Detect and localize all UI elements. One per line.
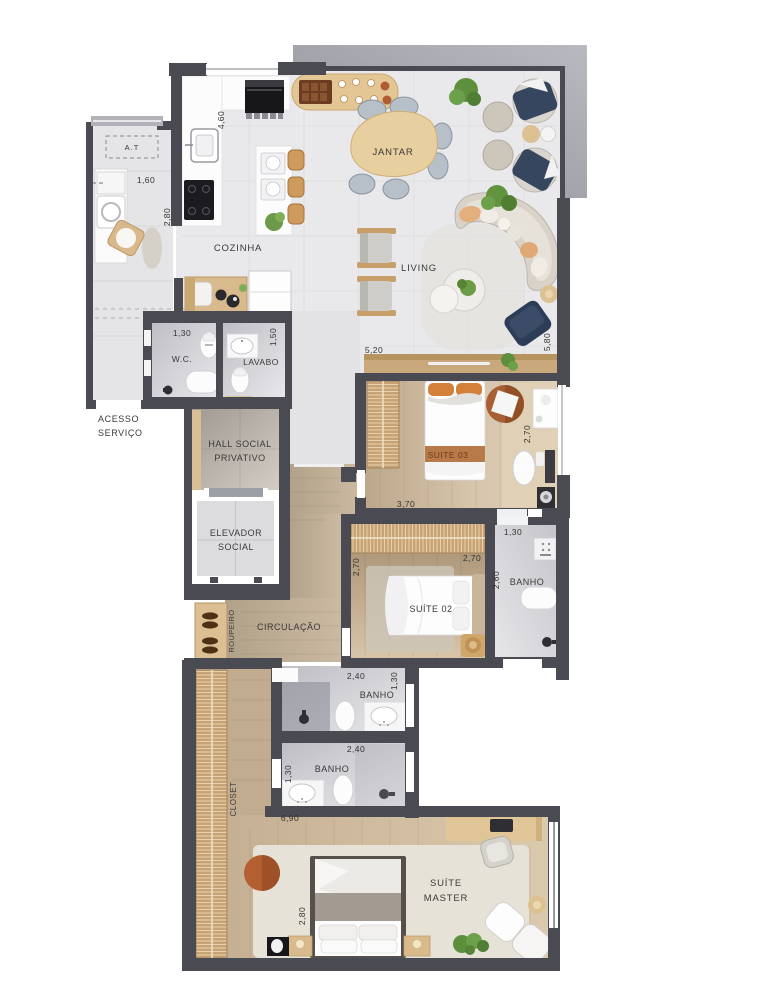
svg-text:BANHO: BANHO	[510, 577, 545, 587]
svg-text:SUITE 03: SUITE 03	[428, 450, 469, 460]
svg-text:2,40: 2,40	[347, 744, 365, 754]
svg-text:MASTER: MASTER	[424, 893, 468, 904]
svg-text:ACESSO: ACESSO	[98, 414, 139, 424]
svg-text:ELEVADOR: ELEVADOR	[210, 528, 262, 538]
svg-text:LIVING: LIVING	[401, 263, 437, 274]
svg-text:A.T: A.T	[125, 143, 140, 152]
svg-text:1,30: 1,30	[283, 765, 293, 783]
svg-text:1,60: 1,60	[137, 175, 155, 185]
svg-text:COZINHA: COZINHA	[214, 243, 262, 254]
svg-text:SUÍTE: SUÍTE	[430, 878, 462, 889]
svg-text:BANHO: BANHO	[360, 690, 395, 700]
svg-text:1,50: 1,50	[268, 328, 278, 346]
svg-text:W.C.: W.C.	[172, 354, 192, 364]
svg-text:SOCIAL: SOCIAL	[218, 542, 254, 552]
svg-text:2,80: 2,80	[297, 907, 307, 925]
svg-text:ROUPEIRO: ROUPEIRO	[227, 609, 236, 652]
svg-text:CIRCULAÇÃO: CIRCULAÇÃO	[257, 622, 321, 632]
svg-text:2,60: 2,60	[491, 571, 501, 589]
svg-text:2,70: 2,70	[522, 425, 532, 443]
svg-text:3,70: 3,70	[397, 499, 415, 509]
svg-text:PRIVATIVO: PRIVATIVO	[214, 453, 265, 463]
svg-text:SERVIÇO: SERVIÇO	[98, 428, 143, 438]
svg-text:1,30: 1,30	[173, 328, 191, 338]
svg-text:LAVABO: LAVABO	[243, 357, 279, 367]
svg-text:BANHO: BANHO	[315, 764, 350, 774]
svg-text:1,30: 1,30	[389, 672, 399, 690]
svg-text:2,70: 2,70	[351, 558, 361, 576]
svg-text:SUÍTE 02: SUÍTE 02	[409, 604, 452, 614]
svg-text:JANTAR: JANTAR	[372, 147, 413, 158]
svg-text:2,80: 2,80	[162, 208, 172, 226]
svg-text:2,40: 2,40	[347, 671, 365, 681]
svg-text:2,70: 2,70	[463, 553, 481, 563]
svg-text:1,30: 1,30	[504, 527, 522, 537]
svg-text:6,90: 6,90	[281, 813, 299, 823]
svg-text:CLOSET: CLOSET	[229, 781, 238, 816]
svg-text:5,80: 5,80	[542, 333, 552, 351]
svg-text:HALL SOCIAL: HALL SOCIAL	[208, 439, 271, 449]
svg-text:5,20: 5,20	[365, 345, 383, 355]
svg-text:4,60: 4,60	[216, 111, 226, 129]
